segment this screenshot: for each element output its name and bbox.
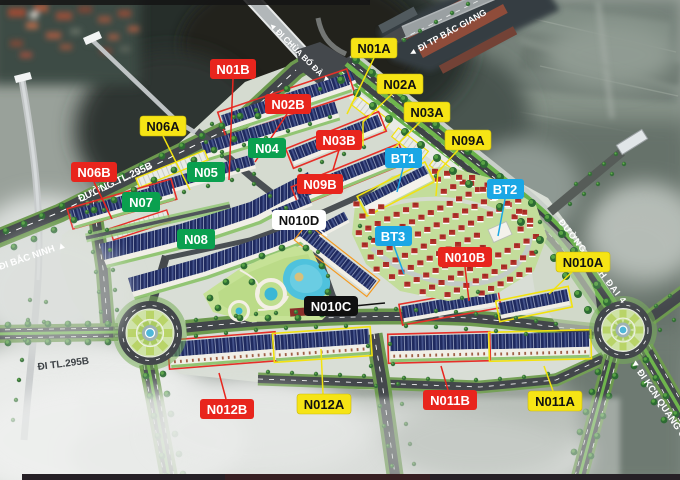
svg-text:BT3: BT3 <box>381 229 406 244</box>
svg-text:N09A: N09A <box>451 133 485 148</box>
svg-text:N03B: N03B <box>322 133 355 148</box>
svg-text:N011B: N011B <box>430 393 470 408</box>
svg-text:N02A: N02A <box>383 77 417 92</box>
svg-text:N03A: N03A <box>410 105 444 120</box>
svg-text:N010C: N010C <box>311 299 352 314</box>
svg-text:N04: N04 <box>255 141 280 156</box>
svg-text:N07: N07 <box>129 195 153 210</box>
svg-text:N06B: N06B <box>77 165 110 180</box>
svg-text:N05: N05 <box>194 165 218 180</box>
svg-text:N010B: N010B <box>445 250 485 265</box>
svg-text:N08: N08 <box>184 232 208 247</box>
svg-text:N010A: N010A <box>563 255 604 270</box>
svg-text:N012B: N012B <box>207 402 247 417</box>
svg-text:BT2: BT2 <box>493 182 518 197</box>
svg-text:N06A: N06A <box>146 119 180 134</box>
svg-text:N011A: N011A <box>535 394 575 409</box>
svg-text:N09B: N09B <box>303 177 336 192</box>
svg-text:N01A: N01A <box>357 41 391 56</box>
svg-text:N02B: N02B <box>271 97 304 112</box>
svg-text:N012A: N012A <box>304 397 345 412</box>
svg-text:N010D: N010D <box>279 213 319 228</box>
svg-text:BT1: BT1 <box>391 151 416 166</box>
svg-text:N01B: N01B <box>216 62 249 77</box>
